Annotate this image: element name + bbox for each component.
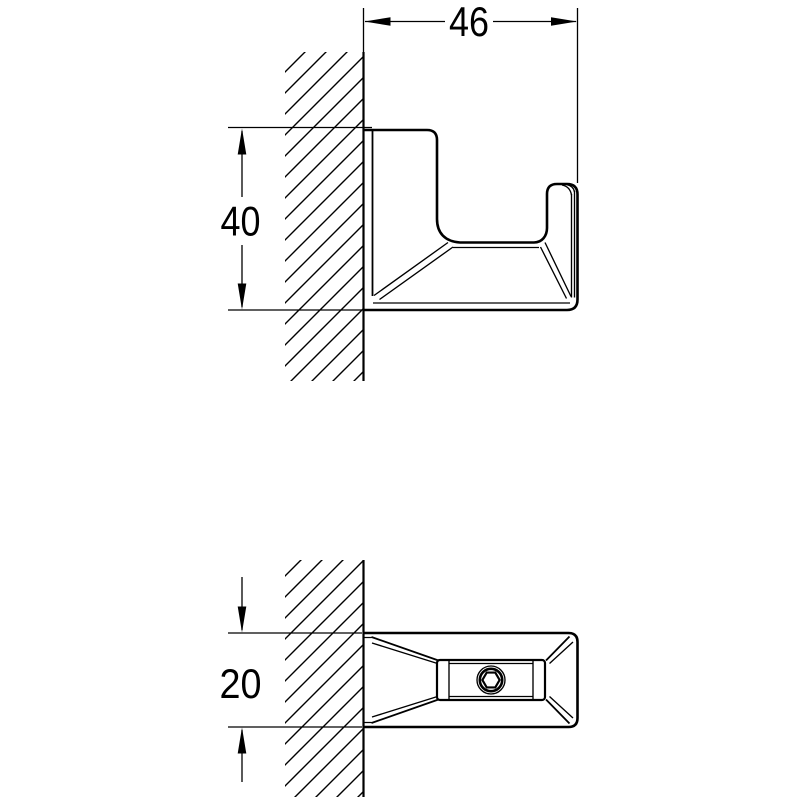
right-chamfer-edges [541,243,572,299]
taper-inner-diagonals [372,642,573,718]
arrowhead-up-icon [238,728,247,754]
dimension-label-height: 40 [221,198,261,245]
wall-hatch-side [285,52,364,381]
arrowhead-down-icon [238,284,247,310]
hook-inner-edges-side [373,131,575,303]
taper-edges-top [372,637,574,724]
arrowhead-left-icon [365,17,391,26]
dimension-width-46: 46 [364,0,578,183]
taper-outer-diagonals [372,637,570,724]
dimension-label-width: 46 [449,0,489,45]
hook-outline-side [363,130,578,310]
lip-inner-edges [572,191,575,298]
dimension-label-depth: 20 [220,660,262,707]
technical-drawing-page: 46 40 20 [0,0,800,800]
screw-hex-socket [482,673,499,688]
arrowhead-up-icon [238,129,247,155]
wall-hook-dimension-drawing: 46 40 20 [0,0,800,800]
left-chamfer-edges [374,243,453,300]
wall-hatch-top [285,560,364,797]
side-view [285,52,578,381]
top-view [285,560,578,797]
hex-socket-screw-icon [477,666,505,694]
face-bevel-edges [449,661,533,699]
arrowhead-down-icon [238,607,247,633]
arrowhead-right-icon [551,17,577,26]
